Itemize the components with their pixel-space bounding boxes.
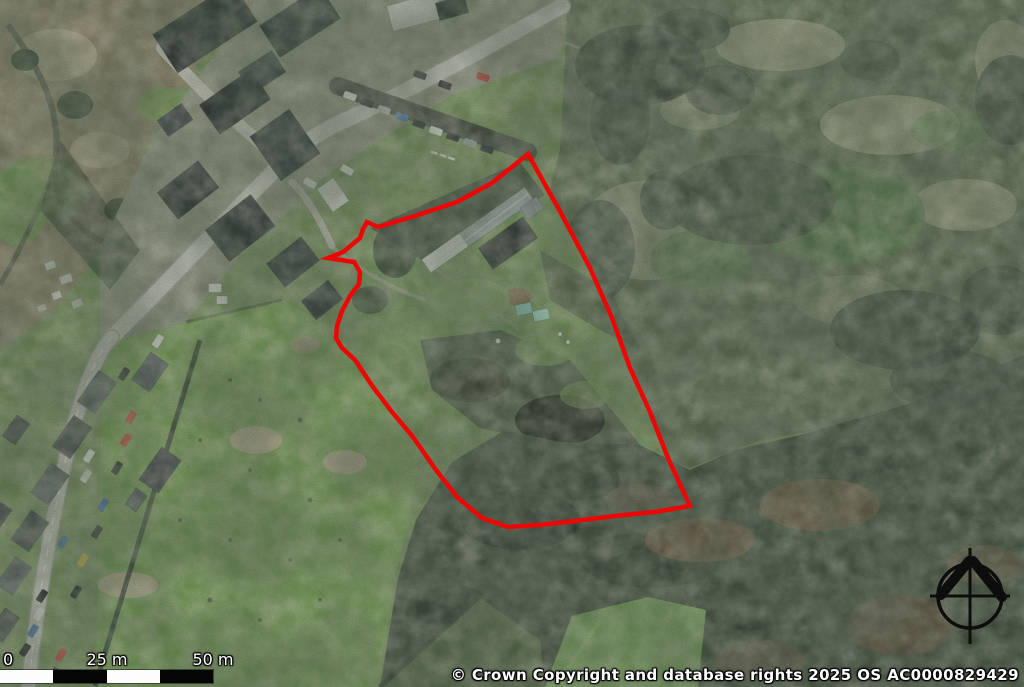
photo-texture: [0, 0, 1024, 687]
scale-label-50: 50 m: [192, 651, 233, 669]
scale-bar-segment: [160, 670, 213, 683]
aerial-photo: [0, 0, 1024, 687]
scale-label-0: 0: [3, 651, 13, 669]
scale-bar-segment: [0, 670, 53, 683]
aerial-map: 0 25 m 50 m © Crown Copyright and databa…: [0, 0, 1024, 687]
copyright-attribution: © Crown Copyright and database rights 20…: [451, 666, 1019, 684]
scale-bar-segment: [53, 670, 106, 683]
scale-bar: 0 25 m 50 m: [0, 651, 240, 687]
scale-bar-segment: [107, 670, 160, 683]
north-arrow-compass-icon: [918, 544, 1022, 648]
scale-bar-segments: [0, 670, 213, 683]
scale-label-25: 25 m: [86, 651, 127, 669]
